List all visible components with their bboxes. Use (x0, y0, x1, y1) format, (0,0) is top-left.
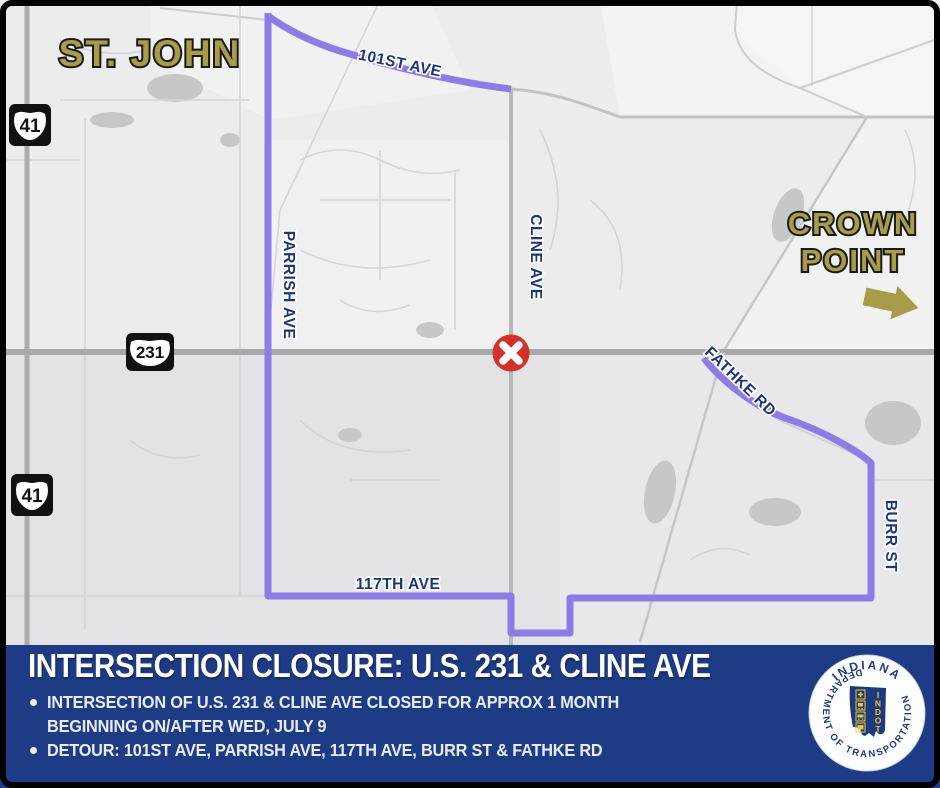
indot-logo-seal: INDIANA DEPARTMENT OF TRANSPORTATION I N… (807, 653, 927, 773)
map-area: 41 41 231 101ST AVE PARRISH AVE CLINE AV… (0, 0, 940, 645)
svg-text:231: 231 (136, 343, 164, 362)
map-background (0, 0, 940, 645)
city-label-crown-point-line1: CROWN (788, 206, 919, 241)
bullet-item-continuation: BEGINNING ON/AFTER WED, JULY 9 (28, 715, 818, 738)
us-231-shield: 231 (126, 333, 174, 371)
map-canvas: 41 41 231 101ST AVE PARRISH AVE CLINE AV… (0, 0, 940, 645)
banner-title: INTERSECTION CLOSURE: U.S. 231 & CLINE A… (28, 649, 849, 684)
road-label-117th-ave: 117TH AVE (356, 576, 441, 593)
indot-logo: INDIANA DEPARTMENT OF TRANSPORTATION I N… (807, 653, 927, 773)
closure-announcement-poster: 41 41 231 101ST AVE PARRISH AVE CLINE AV… (0, 0, 940, 788)
announcement-banner: INTERSECTION CLOSURE: U.S. 231 & CLINE A… (0, 645, 940, 788)
bullet-item: INTERSECTION OF U.S. 231 & CLINE AVE CLO… (28, 691, 818, 714)
us-41-shield-north: 41 (9, 104, 51, 146)
bullet-text: BEGINNING ON/AFTER WED, JULY 9 (47, 715, 326, 738)
bullet-item: DETOUR: 101ST AVE, PARRISH AVE, 117TH AV… (28, 739, 818, 762)
banner-bullets: INTERSECTION OF U.S. 231 & CLINE AVE CLO… (28, 691, 818, 762)
bullet-dot-icon (30, 699, 37, 706)
bullet-text: DETOUR: 101ST AVE, PARRISH AVE, 117TH AV… (47, 739, 602, 762)
svg-text:T: T (875, 724, 881, 734)
city-label-st-john: ST. JOHN (59, 33, 242, 74)
road-label-burr-st: BURR ST (882, 500, 899, 572)
closure-x-marker (493, 335, 530, 372)
bullet-dot-icon (30, 747, 37, 754)
city-label-crown-point-line2: POINT (801, 243, 906, 278)
road-label-parrish-ave: PARRISH AVE (280, 231, 297, 340)
road-label-cline-ave: CLINE AVE (527, 214, 544, 299)
bullet-text: INTERSECTION OF U.S. 231 & CLINE AVE CLO… (47, 691, 619, 714)
svg-text:41: 41 (21, 486, 43, 507)
svg-text:41: 41 (19, 116, 41, 137)
us-41-shield-south: 41 (11, 474, 53, 516)
